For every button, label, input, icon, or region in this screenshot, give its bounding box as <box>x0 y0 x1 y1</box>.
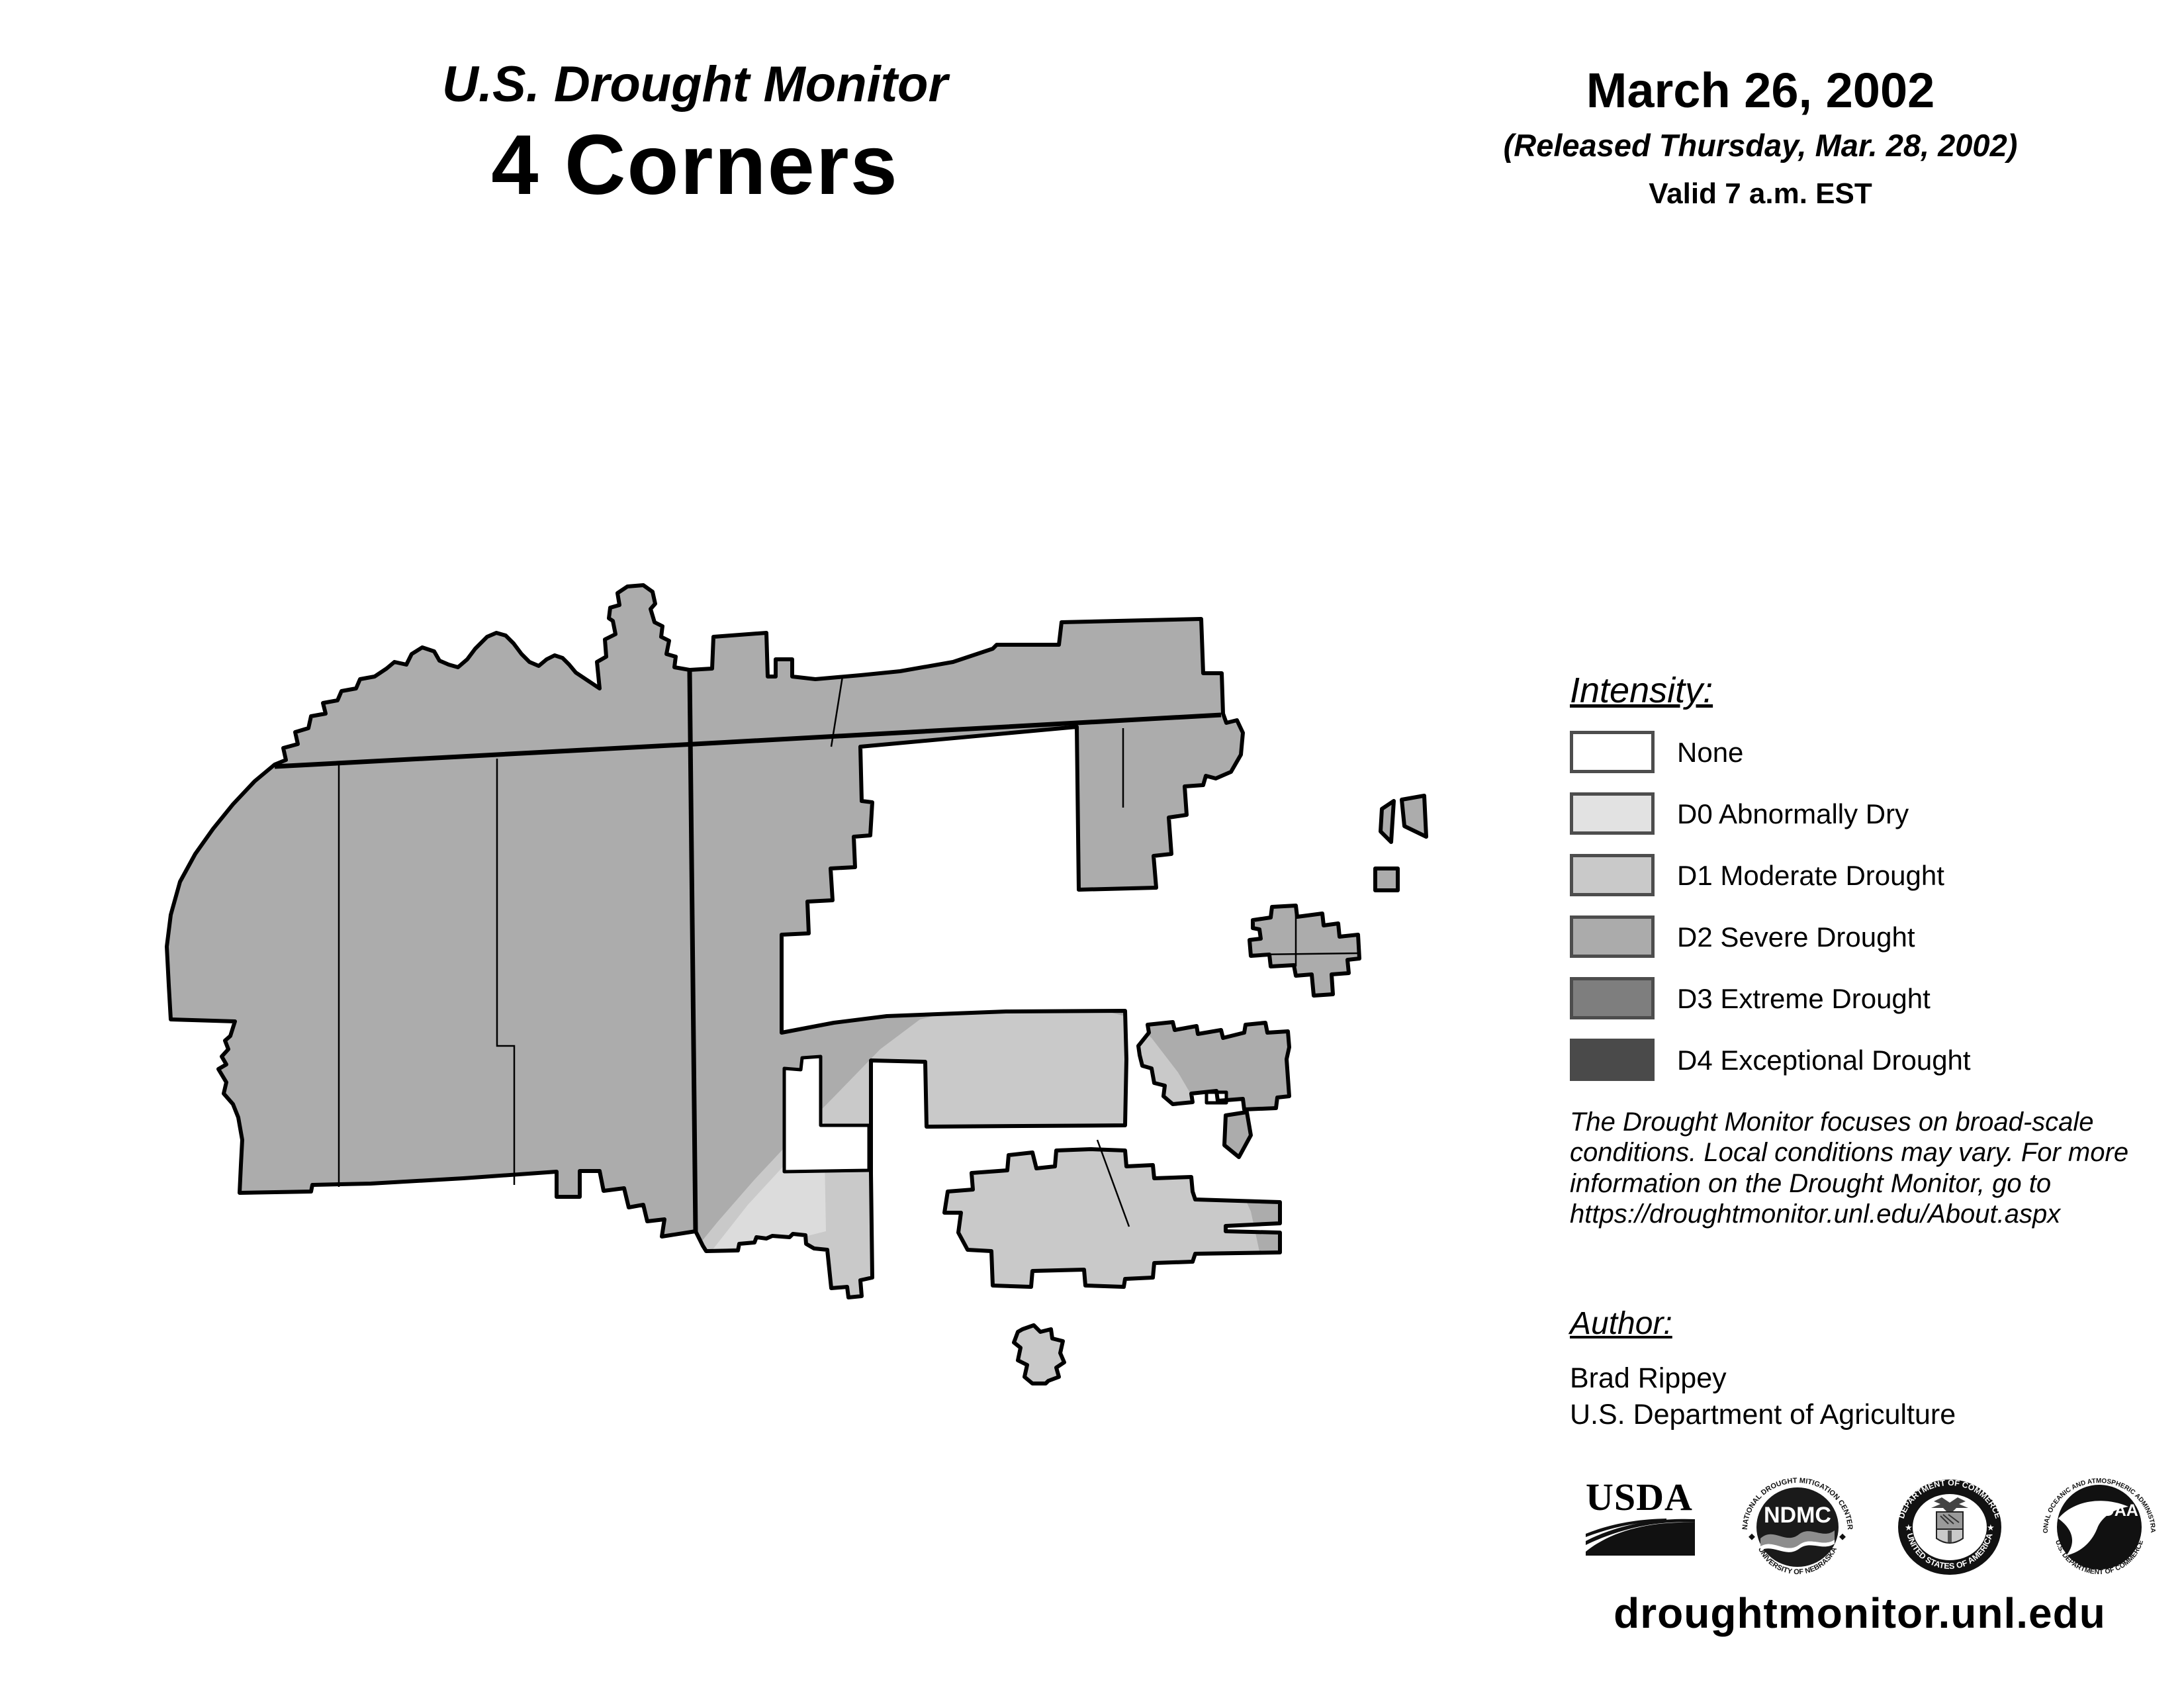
logo-row: USDA NATIONAL DROUGHT MITIGATION CENTER … <box>1582 1477 2164 1577</box>
legend-swatch-none <box>1570 731 1655 773</box>
disclaimer-text: The Drought Monitor focuses on broad-sca… <box>1570 1107 2139 1230</box>
legend-swatch-d4 <box>1570 1039 1655 1081</box>
legend-row-d2: D2 Severe Drought <box>1570 915 2165 959</box>
doc-star-left: ★ <box>1905 1523 1913 1532</box>
legend-label-d3: D3 Extreme Drought <box>1677 983 1931 1015</box>
legend-swatch-d1 <box>1570 854 1655 896</box>
ndmc-acronym: NDMC <box>1764 1503 1831 1528</box>
drought-monitor-page: { "header": { "title": "U.S. Drought Mon… <box>0 0 2184 1688</box>
legend-label-d1: D1 Moderate Drought <box>1677 860 1944 892</box>
noaa-acronym: NOAA <box>2089 1501 2138 1520</box>
legend-swatch-d3 <box>1570 977 1655 1019</box>
author-name: Brad Rippey <box>1570 1362 1727 1395</box>
site-url: droughtmonitor.unl.edu <box>1529 1589 2184 1638</box>
doc-star-right: ★ <box>1987 1523 1995 1532</box>
map-d2-fill <box>167 585 1426 1383</box>
legend-swatch-d2 <box>1570 915 1655 958</box>
legend-row-d0: D0 Abnormally Dry <box>1570 792 2165 836</box>
legend-row-d3: D3 Extreme Drought <box>1570 977 2165 1021</box>
usda-swoosh-icon <box>1586 1515 1695 1556</box>
legend-label-d0: D0 Abnormally Dry <box>1677 798 1909 830</box>
legend-label-d4: D4 Exceptional Drought <box>1677 1045 1971 1076</box>
legend-label-d2: D2 Severe Drought <box>1677 921 1915 953</box>
usda-logo: USDA <box>1586 1480 1698 1559</box>
drought-map <box>0 0 2184 1688</box>
legend-row-d4: D4 Exceptional Drought <box>1570 1039 2165 1082</box>
legend-label-none: None <box>1677 737 1743 769</box>
doc-seal-logo: DEPARTMENT OF COMMERCE UNITED STATES OF … <box>1890 1477 2009 1577</box>
legend-row-none: None <box>1570 731 2165 774</box>
author-organization: U.S. Department of Agriculture <box>1570 1399 1956 1431</box>
legend-row-d1: D1 Moderate Drought <box>1570 854 2165 898</box>
author-heading: Author: <box>1570 1305 1672 1342</box>
ndmc-logo: NATIONAL DROUGHT MITIGATION CENTER UNIVE… <box>1738 1477 1857 1577</box>
legend-swatch-d0 <box>1570 792 1655 835</box>
legend-heading: Intensity: <box>1570 670 1713 711</box>
noaa-logo: NATIONAL OCEANIC AND ATMOSPHERIC ADMINIS… <box>2040 1477 2159 1577</box>
usda-logo-text: USDA <box>1586 1480 1698 1515</box>
